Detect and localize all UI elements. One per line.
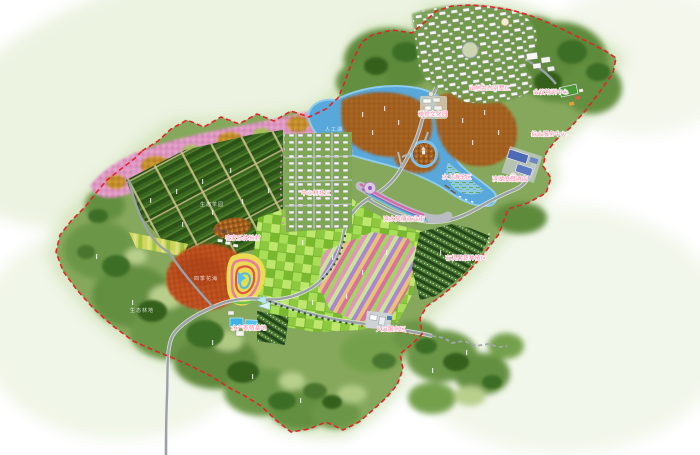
central-plaza (462, 42, 478, 58)
area-label: 四季花海 (194, 275, 218, 282)
map-label: 水产养殖基地 (231, 324, 266, 332)
map-label: 山地生态别墅区 (469, 84, 510, 92)
map-label: 综合服务中心 (531, 130, 566, 138)
map-label: 滨水风情商业街 (383, 215, 424, 223)
map-label: 水上游乐区 (442, 173, 472, 181)
map-label: 会议培训中心 (533, 88, 568, 96)
dome-building (501, 18, 509, 26)
map-label: 有机果蔬种植区 (445, 254, 486, 262)
map-label: 中心村社区 (301, 189, 331, 197)
area-label: 生态茶园 (200, 201, 224, 208)
site-plan-map: 人工湖生态茶园四季花海生态林地 山地生态别墅区会议培训中心禅修文化园综合服务中心… (0, 0, 700, 455)
area-label: 生态林地 (130, 307, 154, 314)
area-label: 人工湖 (325, 126, 343, 133)
pagoda (422, 150, 425, 155)
master-plan-rendering: 人工湖生态茶园四季花海生态林地 山地生态别墅区会议培训中心禅修文化园综合服务中心… (0, 0, 700, 455)
map-label: 滨湖度假酒店 (492, 175, 527, 183)
central-village (284, 132, 352, 232)
map-label: 入口服务区 (376, 325, 406, 333)
map-label: 禅修文化园 (418, 110, 448, 118)
map-label: 农家乐体验村 (225, 234, 260, 242)
